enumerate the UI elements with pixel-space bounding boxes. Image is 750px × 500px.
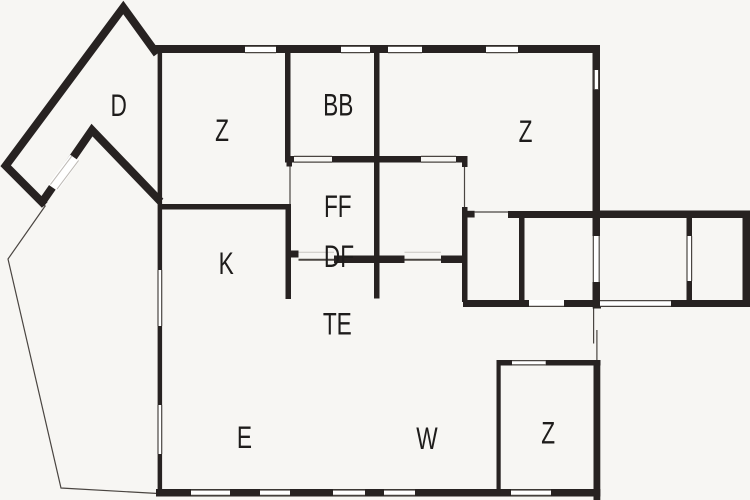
svg-text:TE: TE: [323, 306, 352, 342]
svg-text:BB: BB: [323, 87, 353, 123]
svg-text:W: W: [416, 420, 437, 456]
svg-text:DF: DF: [324, 238, 354, 274]
svg-text:Z: Z: [215, 112, 229, 148]
svg-text:Z: Z: [519, 113, 533, 149]
svg-text:E: E: [237, 419, 252, 455]
svg-text:D: D: [111, 88, 127, 124]
svg-text:FF: FF: [324, 188, 352, 224]
svg-text:K: K: [219, 245, 234, 281]
svg-text:Z: Z: [541, 415, 555, 451]
